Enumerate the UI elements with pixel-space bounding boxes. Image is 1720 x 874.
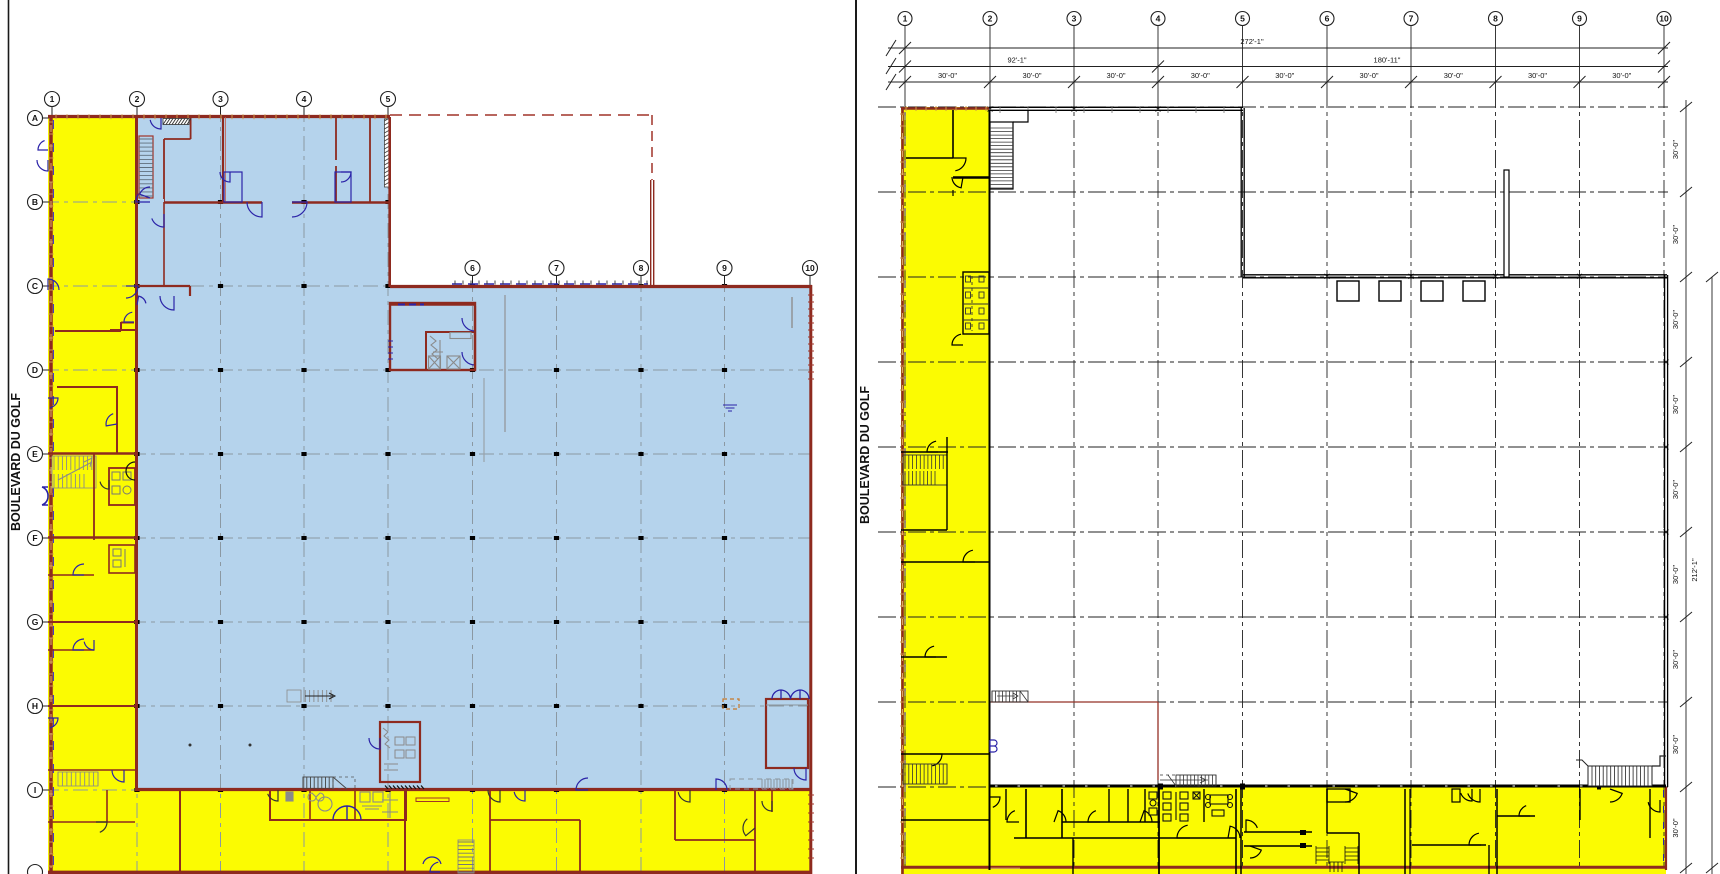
svg-text:30'-0": 30'-0" — [938, 71, 957, 80]
svg-text:C: C — [32, 281, 38, 291]
svg-text:7: 7 — [554, 263, 559, 273]
svg-text:30'-0": 30'-0" — [1671, 395, 1680, 414]
svg-text:8: 8 — [1493, 14, 1498, 24]
svg-text:10: 10 — [805, 263, 815, 273]
svg-text:8: 8 — [639, 263, 644, 273]
svg-text:30'-0": 30'-0" — [1671, 225, 1680, 244]
svg-text:6: 6 — [1325, 14, 1330, 24]
svg-text:9: 9 — [722, 263, 727, 273]
svg-text:92'-1": 92'-1" — [1007, 56, 1026, 65]
svg-text:212'-1": 212'-1" — [1690, 558, 1699, 582]
svg-text:5: 5 — [1240, 14, 1245, 24]
svg-text:D: D — [32, 365, 38, 375]
svg-text:2: 2 — [135, 94, 140, 104]
svg-text:4: 4 — [302, 94, 307, 104]
svg-text:30'-0": 30'-0" — [1671, 650, 1680, 669]
svg-text:30'-0": 30'-0" — [1671, 310, 1680, 329]
svg-text:A: A — [32, 113, 38, 123]
svg-text:30'-0": 30'-0" — [1359, 71, 1378, 80]
svg-text:30'-0": 30'-0" — [1022, 71, 1041, 80]
svg-text:1: 1 — [903, 14, 908, 24]
svg-text:1: 1 — [50, 94, 55, 104]
svg-text:10: 10 — [1659, 14, 1669, 24]
svg-text:H: H — [32, 701, 38, 711]
svg-text:G: G — [32, 617, 39, 627]
svg-text:F: F — [32, 533, 37, 543]
svg-text:6: 6 — [470, 263, 475, 273]
svg-text:30'-0": 30'-0" — [1671, 818, 1680, 837]
svg-text:3: 3 — [218, 94, 223, 104]
svg-text:BOULEVARD DU GOLF: BOULEVARD DU GOLF — [858, 386, 872, 524]
svg-text:30'-0": 30'-0" — [1671, 480, 1680, 499]
svg-text:7: 7 — [1409, 14, 1414, 24]
svg-text:30'-0": 30'-0" — [1444, 71, 1463, 80]
svg-text:30'-0": 30'-0" — [1528, 71, 1547, 80]
svg-text:5: 5 — [386, 94, 391, 104]
svg-text:180'-11": 180'-11" — [1374, 56, 1401, 65]
svg-text:BOULEVARD DU GOLF: BOULEVARD DU GOLF — [9, 393, 23, 531]
svg-text:30'-0": 30'-0" — [1671, 140, 1680, 159]
svg-text:30'-0": 30'-0" — [1671, 565, 1680, 584]
svg-text:30'-0": 30'-0" — [1612, 71, 1631, 80]
svg-text:B: B — [32, 197, 38, 207]
svg-text:30'-0": 30'-0" — [1671, 735, 1680, 754]
svg-text:30'-0": 30'-0" — [1275, 71, 1294, 80]
svg-text:9: 9 — [1577, 14, 1582, 24]
svg-text:30'-0": 30'-0" — [1191, 71, 1210, 80]
svg-text:E: E — [32, 449, 38, 459]
svg-text:I: I — [34, 785, 36, 795]
svg-text:2: 2 — [988, 14, 993, 24]
svg-text:272'-1": 272'-1" — [1240, 37, 1264, 46]
svg-text:30'-0": 30'-0" — [1106, 71, 1125, 80]
svg-text:3: 3 — [1072, 14, 1077, 24]
svg-text:4: 4 — [1156, 14, 1161, 24]
